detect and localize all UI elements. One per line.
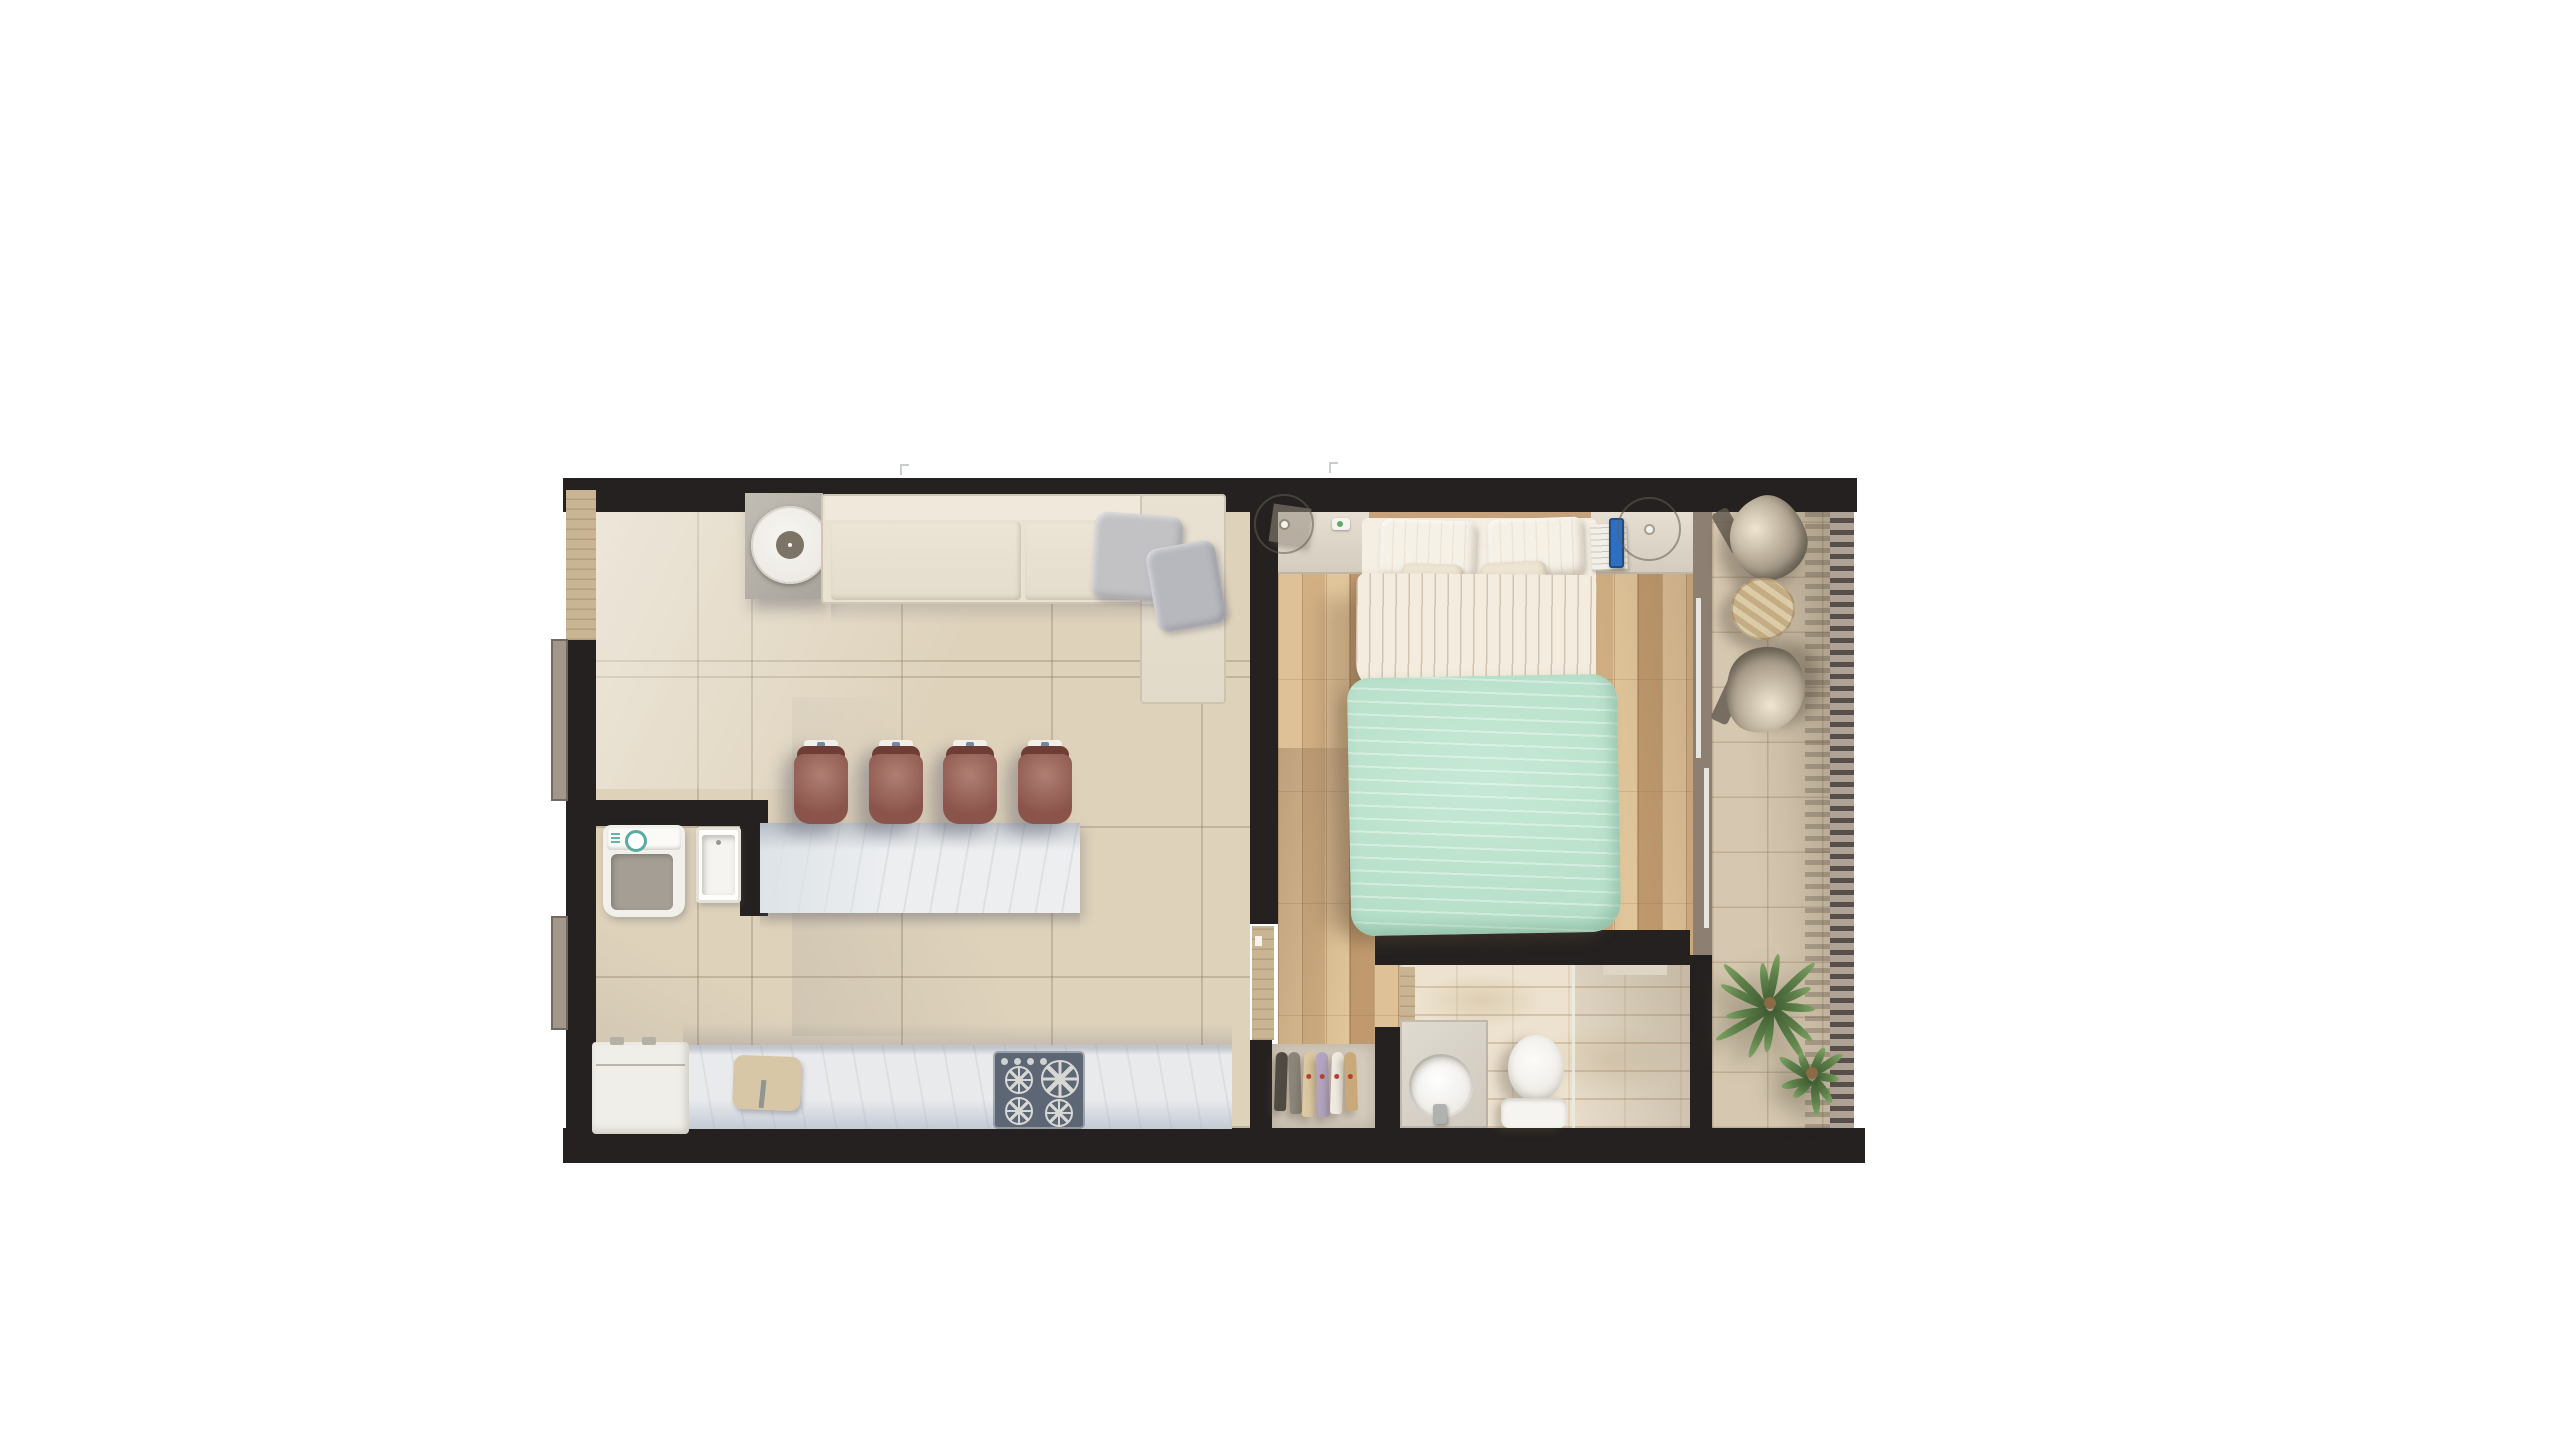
closet-clothes-rack	[1275, 1052, 1367, 1124]
potted-plant-large	[1715, 948, 1825, 1058]
fan-hub	[1646, 526, 1653, 533]
clothing-item	[1330, 1052, 1344, 1114]
remote-control-button	[1337, 521, 1343, 527]
bar-stool	[1018, 744, 1072, 826]
plant-core	[1806, 1067, 1818, 1079]
bar-stool	[794, 744, 848, 826]
shower-glass-partition	[1572, 965, 1575, 1128]
washing-machine-knob	[625, 830, 647, 852]
washing-machine-buttons	[611, 833, 620, 843]
bar-stool	[869, 744, 923, 826]
bathroom-niche	[1603, 965, 1667, 975]
cutting-board	[732, 1055, 802, 1111]
sofa-seat-cushion	[831, 522, 1021, 600]
window-left-upper	[551, 639, 568, 801]
toilet-bowl	[1508, 1035, 1564, 1101]
kitchen-island	[760, 823, 1080, 913]
clothing-item	[1302, 1052, 1316, 1117]
refrigerator	[592, 1042, 689, 1134]
wall-bathroom-balcony	[1690, 955, 1712, 1128]
dimension-tick-2	[1329, 462, 1338, 473]
wall-divider-lower	[1250, 1040, 1272, 1128]
shower-area	[1575, 965, 1690, 1128]
wall-divider-upper	[1250, 512, 1278, 924]
bed-duvet	[1347, 674, 1621, 937]
cooktop-knob	[1040, 1058, 1047, 1065]
refrigerator-hinge	[642, 1037, 656, 1045]
sliding-door-glass-2	[1704, 768, 1709, 928]
page-background	[0, 0, 2560, 1440]
wall-bathroom-top	[1375, 930, 1690, 965]
clothing-item	[1288, 1052, 1302, 1114]
clothing-item	[1344, 1052, 1358, 1111]
decor-tray-dot	[788, 543, 792, 547]
laundry-sink-drain	[716, 840, 721, 845]
potted-plant-small	[1782, 1043, 1842, 1103]
bathroom-door	[1400, 967, 1415, 1027]
stool-seat	[943, 754, 997, 824]
bar-stools-row	[794, 744, 1072, 828]
window-left-lower	[551, 916, 568, 1030]
wall-bottom	[563, 1128, 1865, 1163]
refrigerator-hinge	[610, 1037, 624, 1045]
clothing-item	[1274, 1052, 1288, 1111]
hanger-hook	[1320, 1074, 1325, 1079]
entry-door	[566, 490, 596, 640]
cooktop-knob	[1014, 1058, 1021, 1065]
bathroom-faucet	[1433, 1104, 1447, 1124]
hanger-hook	[1334, 1074, 1339, 1079]
toilet-tank	[1501, 1098, 1567, 1128]
plant-core	[1764, 997, 1776, 1009]
wall-bathroom-left	[1375, 1027, 1400, 1128]
kitchen-island-shadow	[760, 913, 1080, 929]
balcony-railing	[1830, 506, 1854, 1128]
table-fan-right	[1617, 497, 1681, 561]
stool-seat	[1018, 754, 1072, 824]
bar-stool	[943, 744, 997, 826]
hanger-hook	[1306, 1074, 1311, 1079]
table-fan-left	[1254, 494, 1314, 554]
stove-burner	[1041, 1060, 1079, 1098]
fan-hub	[1281, 521, 1288, 528]
hanger-hook	[1348, 1074, 1353, 1079]
floor-plan	[563, 478, 1865, 1163]
stool-seat	[869, 754, 923, 824]
cooktop-knob	[1027, 1058, 1034, 1065]
sliding-door-glass	[1696, 598, 1701, 758]
dimension-tick	[900, 464, 909, 475]
kitchen-counter-shadow	[683, 1023, 1232, 1045]
stove-burner	[1045, 1099, 1073, 1127]
clothing-item	[1316, 1052, 1330, 1117]
washing-machine-drum	[611, 854, 673, 910]
sofa-pillow-2	[1144, 539, 1228, 634]
stove-burner	[1005, 1097, 1033, 1125]
wall-laundry-top	[571, 800, 768, 826]
cooktop	[995, 1053, 1083, 1127]
bedroom-door-handle	[1255, 936, 1262, 946]
balcony-sliding-door-frame	[1693, 512, 1712, 955]
balcony-table	[1731, 578, 1795, 640]
stool-seat	[794, 754, 848, 824]
cooktop-knob	[1001, 1058, 1008, 1065]
stove-burner	[1005, 1066, 1033, 1094]
refrigerator-door-seam	[596, 1064, 685, 1066]
